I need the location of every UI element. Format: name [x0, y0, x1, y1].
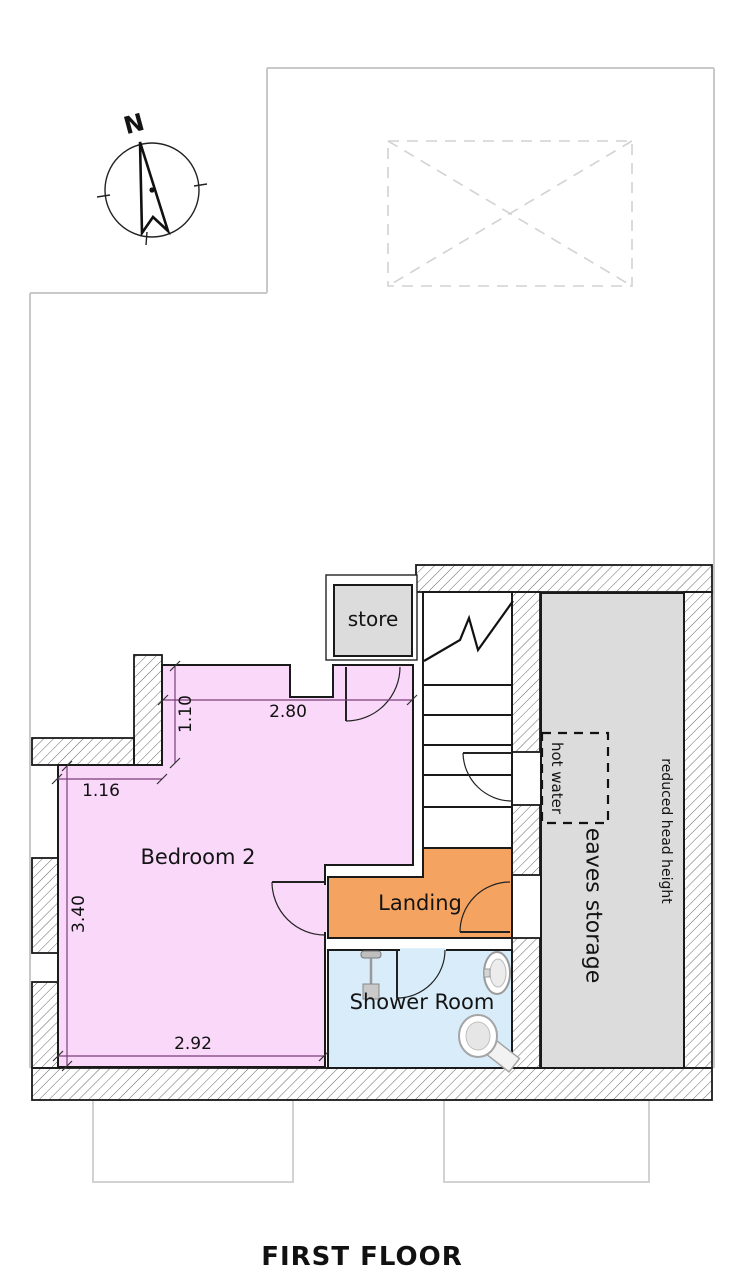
dim-bedroom-top-width: 2.80 — [248, 702, 328, 722]
dim-bedroom-top-depth: 1.10 — [176, 684, 196, 744]
room-label-eaves-storage: eaves storage — [581, 806, 606, 1006]
void-dashed-box — [388, 141, 632, 286]
stairs — [423, 592, 513, 848]
wall-stair-right-mid — [512, 805, 540, 875]
dim-bedroom-left-depth: 3.40 — [69, 884, 89, 944]
dim-bedroom-left-width: 1.16 — [61, 781, 141, 801]
sink-icon — [484, 952, 510, 994]
wall-bottom — [32, 1068, 712, 1100]
compass-icon — [97, 142, 207, 245]
floor-plan-page: N store Bedroom 2 Landing Shower Room ho… — [0, 0, 745, 1280]
label-reduced-head-height: reduced head height — [658, 746, 674, 916]
room-label-landing: Landing — [340, 891, 500, 915]
wall-stair-right-upper — [512, 592, 540, 752]
north-needle — [140, 142, 168, 233]
room-label-bedroom2: Bedroom 2 — [98, 845, 298, 869]
dim-bedroom-bottom-width: 2.92 — [153, 1034, 233, 1054]
room-label-store: store — [333, 607, 413, 631]
page-title: FIRST FLOOR — [212, 1242, 512, 1272]
wall-left-upper — [32, 858, 58, 953]
wall-left-lower — [32, 982, 58, 1068]
wall-bedroom-step-vertical — [134, 655, 162, 765]
room-label-shower: Shower Room — [322, 990, 522, 1014]
wall-top — [416, 565, 712, 592]
label-hot-water: hot water — [548, 718, 566, 838]
floor-plan-canvas — [0, 0, 745, 1280]
wall-right — [684, 592, 712, 1068]
wall-bedroom-step-horizontal — [32, 738, 134, 765]
lower-floor-outline — [93, 1100, 649, 1182]
